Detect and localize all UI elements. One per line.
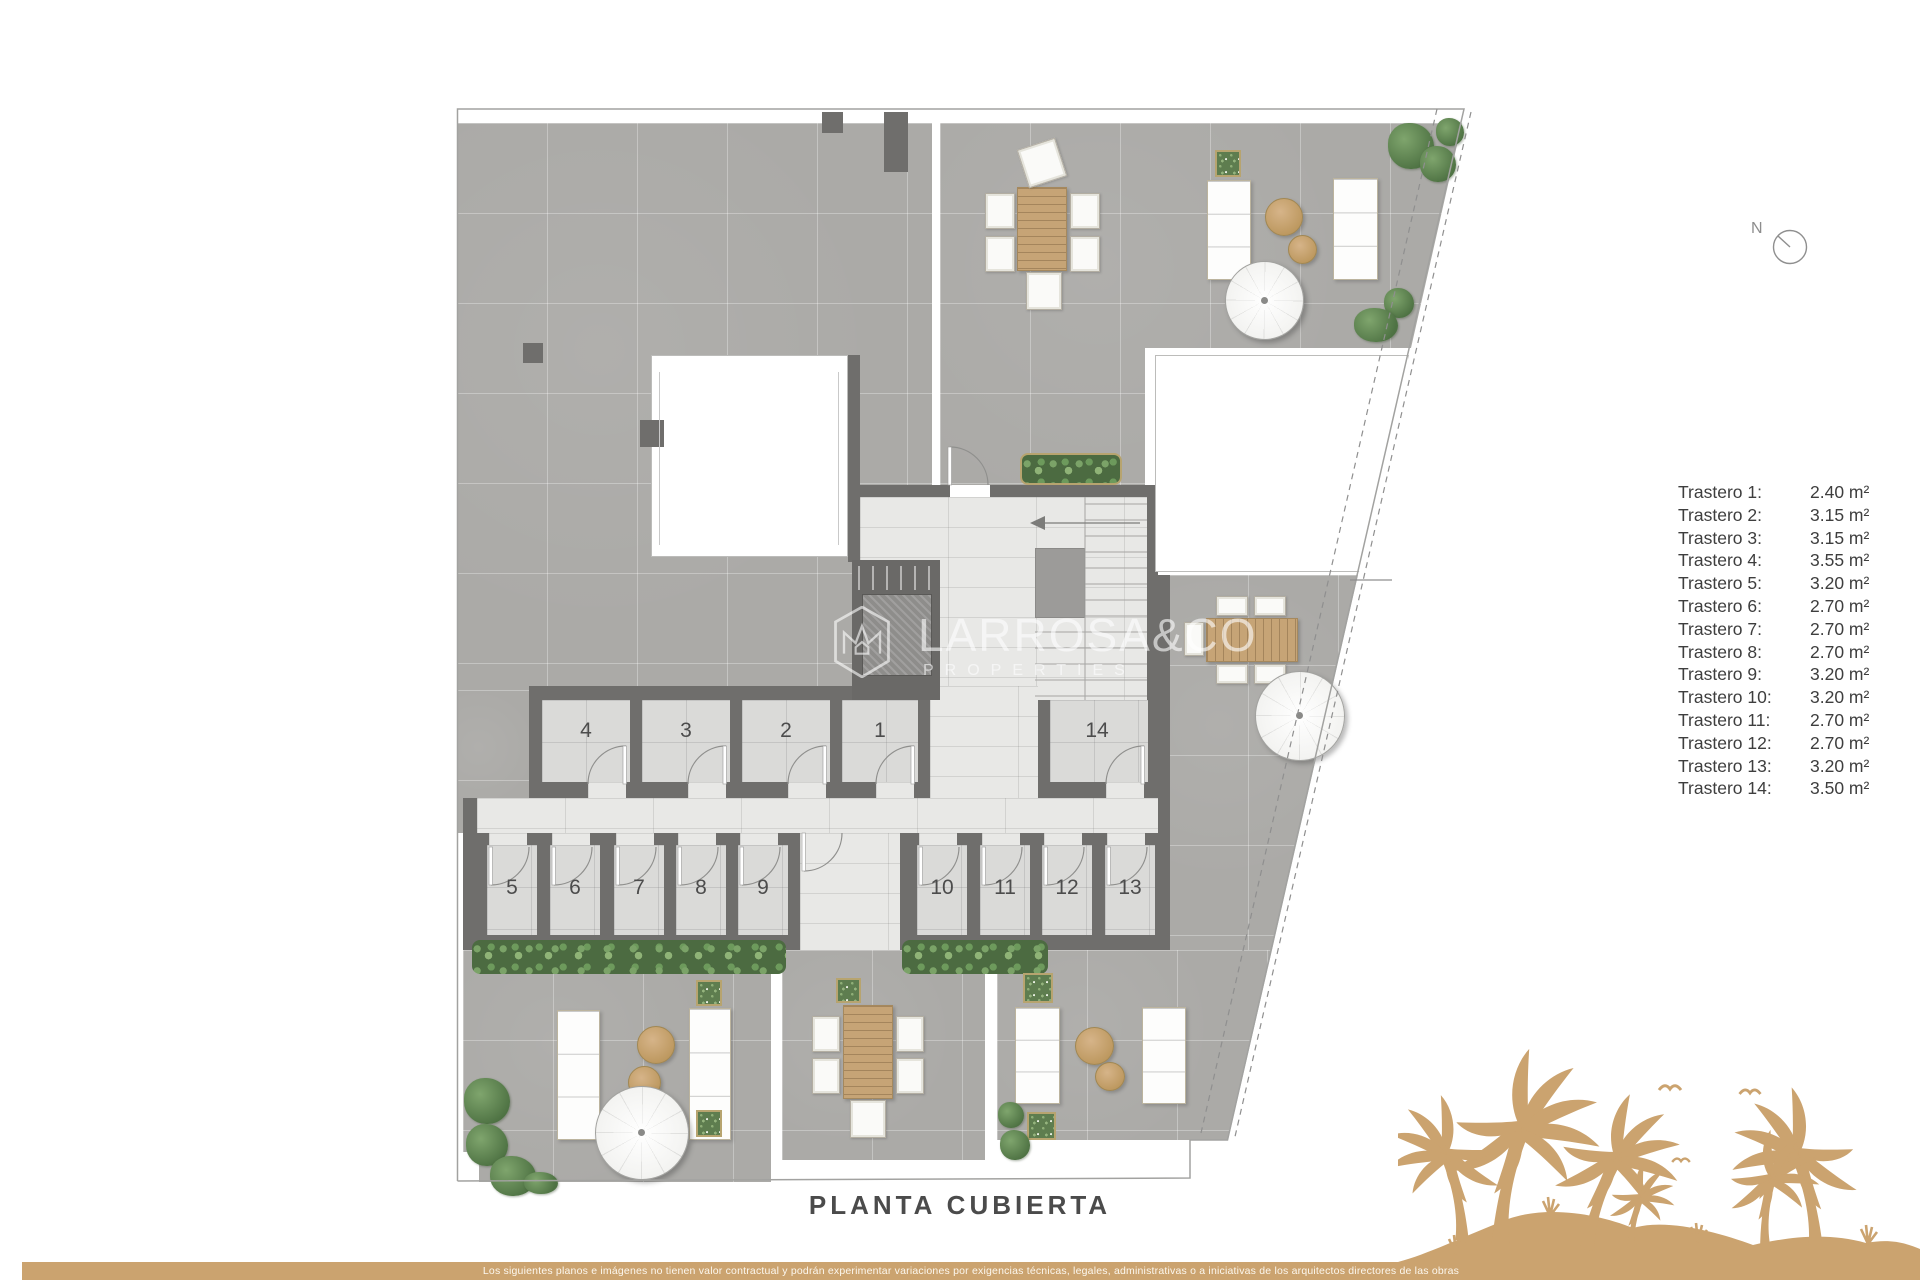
legend-label: Trastero 6: — [1678, 595, 1810, 618]
room-number-12: 12 — [1050, 876, 1084, 900]
compass-icon — [1774, 231, 1807, 264]
legend-value: 3.15 m² — [1810, 527, 1869, 550]
storage-legend: Trastero 1:2.40 m² Trastero 2:3.15 m² Tr… — [1678, 481, 1888, 800]
room-number-8: 8 — [684, 876, 718, 900]
compass-north-label: N — [1751, 220, 1763, 238]
legend-label: Trastero 11: — [1678, 709, 1810, 732]
legend-value: 3.20 m² — [1810, 572, 1869, 595]
legend-label: Trastero 7: — [1678, 618, 1810, 641]
legend-value: 3.20 m² — [1810, 663, 1869, 686]
legend-row: Trastero 1:2.40 m² — [1678, 481, 1888, 504]
legend-label: Trastero 10: — [1678, 686, 1810, 709]
legend-value: 3.20 m² — [1810, 686, 1869, 709]
room-number-4: 4 — [569, 719, 603, 743]
legend-row: Trastero 9:3.20 m² — [1678, 663, 1888, 686]
legend-label: Trastero 2: — [1678, 504, 1810, 527]
legend-row: Trastero 4:3.55 m² — [1678, 549, 1888, 572]
room-number-7: 7 — [622, 876, 656, 900]
door-leaves — [489, 447, 1145, 885]
legend-value: 2.70 m² — [1810, 732, 1869, 755]
legend-value: 2.70 m² — [1810, 709, 1869, 732]
legend-label: Trastero 12: — [1678, 732, 1810, 755]
plan-lines-overlay — [0, 0, 1920, 1280]
legend-label: Trastero 5: — [1678, 572, 1810, 595]
room-number-5: 5 — [495, 876, 529, 900]
room-number-2: 2 — [769, 719, 803, 743]
plot-dashed-line — [1234, 112, 1471, 1141]
legend-value: 2.70 m² — [1810, 641, 1869, 664]
room-number-10: 10 — [925, 876, 959, 900]
legend-label: Trastero 8: — [1678, 641, 1810, 664]
legend-row: Trastero 14:3.50 m² — [1678, 777, 1888, 800]
stair-treads — [1035, 497, 1147, 700]
legend-row: Trastero 12:2.70 m² — [1678, 732, 1888, 755]
legend-value: 3.50 m² — [1810, 777, 1869, 800]
legend-row: Trastero 7:2.70 m² — [1678, 618, 1888, 641]
legend-row: Trastero 13:3.20 m² — [1678, 755, 1888, 778]
legend-row: Trastero 8:2.70 m² — [1678, 641, 1888, 664]
legend-label: Trastero 14: — [1678, 777, 1810, 800]
legend-value: 2.40 m² — [1810, 481, 1869, 504]
legend-value: 3.55 m² — [1810, 549, 1869, 572]
legend-row: Trastero 11:2.70 m² — [1678, 709, 1888, 732]
legend-label: Trastero 9: — [1678, 663, 1810, 686]
plot-dashed-line — [1201, 109, 1437, 1133]
legend-row: Trastero 3:3.15 m² — [1678, 527, 1888, 550]
legend-value: 2.70 m² — [1810, 618, 1869, 641]
stair-arrow-head — [1030, 516, 1045, 530]
legend-label: Trastero 1: — [1678, 481, 1810, 504]
room-number-6: 6 — [558, 876, 592, 900]
legend-label: Trastero 3: — [1678, 527, 1810, 550]
legend-label: Trastero 13: — [1678, 755, 1810, 778]
legend-row: Trastero 5:3.20 m² — [1678, 572, 1888, 595]
room-number-1: 1 — [863, 719, 897, 743]
room-number-11: 11 — [988, 876, 1022, 900]
legend-row: Trastero 6:2.70 m² — [1678, 595, 1888, 618]
room-number-13: 13 — [1113, 876, 1147, 900]
room-number-3: 3 — [669, 719, 703, 743]
room-number-14: 14 — [1080, 719, 1114, 743]
floor-plan-sheet: N 4 3 2 1 14 5 6 7 8 9 10 11 12 13 LARRO… — [0, 0, 1920, 1280]
door-swings — [491, 447, 1147, 885]
legend-value: 2.70 m² — [1810, 595, 1869, 618]
legend-row: Trastero 10:3.20 m² — [1678, 686, 1888, 709]
legend-row: Trastero 2:3.15 m² — [1678, 504, 1888, 527]
legend-label: Trastero 4: — [1678, 549, 1810, 572]
legend-value: 3.20 m² — [1810, 755, 1869, 778]
page-title: PLANTA CUBIERTA — [0, 1190, 1920, 1221]
room-number-9: 9 — [746, 876, 780, 900]
legend-value: 3.15 m² — [1810, 504, 1869, 527]
